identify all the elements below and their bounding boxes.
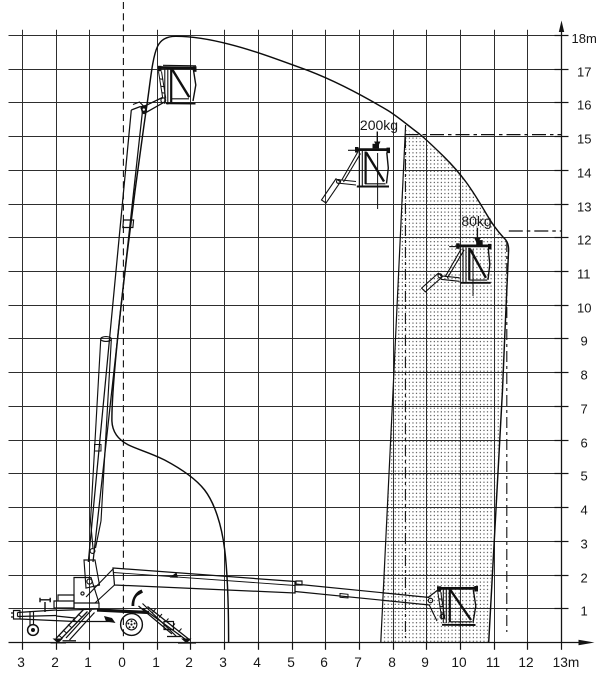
svg-text:13m: 13m xyxy=(553,655,580,670)
svg-text:1: 1 xyxy=(152,655,160,670)
svg-text:6: 6 xyxy=(581,436,588,451)
svg-text:15: 15 xyxy=(577,132,591,147)
svg-text:6: 6 xyxy=(320,655,328,670)
svg-text:2: 2 xyxy=(185,655,193,670)
svg-text:8: 8 xyxy=(388,655,396,670)
svg-text:10: 10 xyxy=(577,301,591,316)
svg-text:10: 10 xyxy=(451,655,467,670)
svg-text:9: 9 xyxy=(421,655,429,670)
svg-text:4: 4 xyxy=(253,655,261,670)
svg-text:7: 7 xyxy=(581,402,588,417)
svg-text:200kg: 200kg xyxy=(360,117,398,133)
svg-text:0: 0 xyxy=(118,655,126,670)
svg-text:12: 12 xyxy=(577,233,591,248)
svg-text:18m: 18m xyxy=(572,31,597,46)
svg-text:5: 5 xyxy=(287,655,295,670)
svg-text:12: 12 xyxy=(518,655,533,670)
svg-text:80kg: 80kg xyxy=(461,213,491,229)
svg-text:7: 7 xyxy=(354,655,362,670)
svg-text:8: 8 xyxy=(581,368,588,383)
svg-text:5: 5 xyxy=(581,469,588,484)
svg-text:11: 11 xyxy=(486,655,500,670)
svg-text:2: 2 xyxy=(581,571,588,586)
svg-text:3: 3 xyxy=(219,655,227,670)
svg-text:1: 1 xyxy=(581,604,588,619)
svg-text:2: 2 xyxy=(51,655,59,670)
svg-text:11: 11 xyxy=(577,267,591,282)
svg-text:14: 14 xyxy=(577,166,591,181)
svg-text:3: 3 xyxy=(17,655,25,670)
svg-text:4: 4 xyxy=(581,503,588,518)
svg-text:17: 17 xyxy=(577,65,591,80)
svg-text:16: 16 xyxy=(577,98,591,113)
svg-text:3: 3 xyxy=(581,537,588,552)
svg-text:1: 1 xyxy=(84,655,92,670)
svg-text:13: 13 xyxy=(577,200,591,215)
svg-text:9: 9 xyxy=(581,334,588,349)
